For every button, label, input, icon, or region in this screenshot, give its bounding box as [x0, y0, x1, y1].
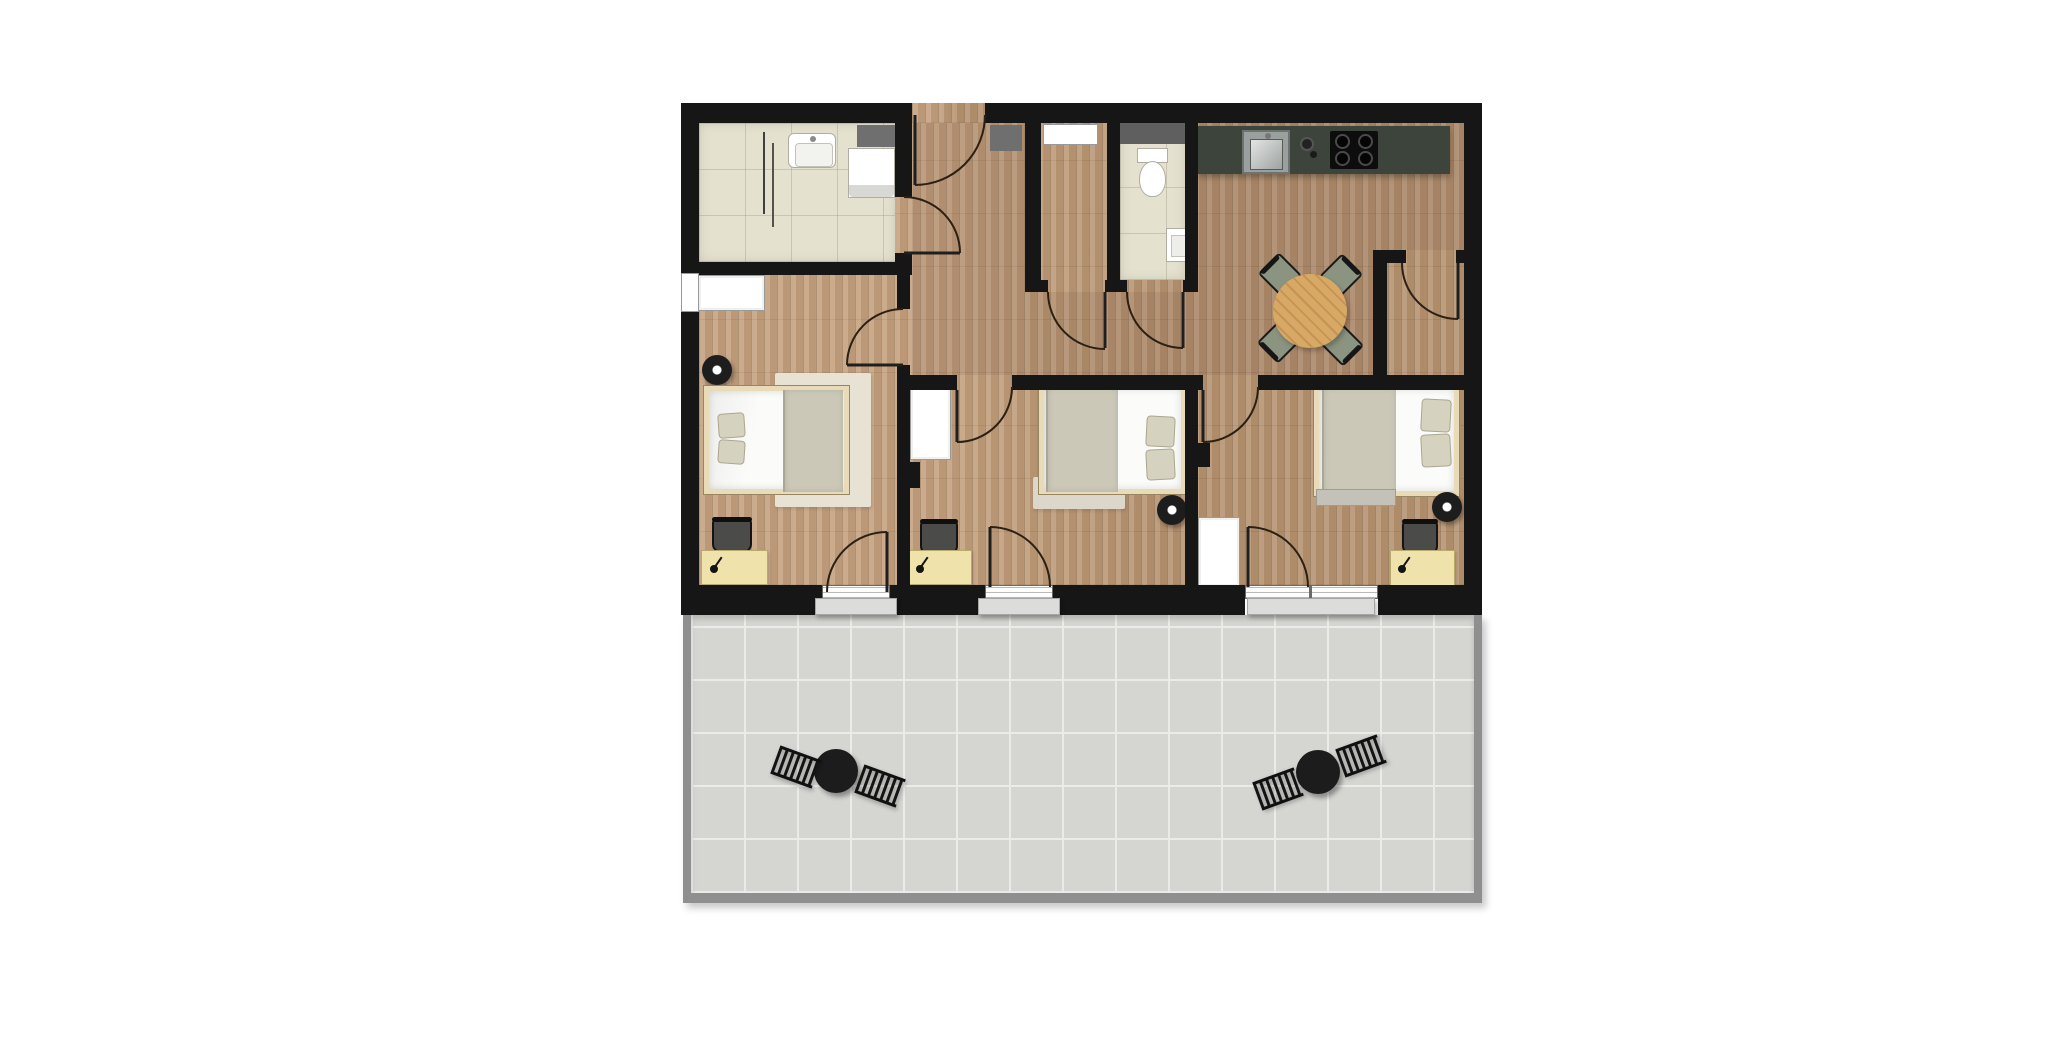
wall [1258, 375, 1464, 390]
bed-bench [1316, 489, 1396, 506]
bed-blanket [1322, 388, 1396, 494]
pillow [1145, 448, 1176, 480]
wall [897, 365, 910, 585]
wall [898, 375, 957, 390]
door-frame-divider [1309, 585, 1312, 599]
kitchen-sink-basin [1250, 139, 1283, 170]
floor-plan-canvas [0, 0, 2048, 1056]
wall [1025, 123, 1041, 280]
bed-blanket [783, 390, 843, 492]
wall [681, 103, 912, 123]
wall [681, 103, 699, 273]
washer-door-band [849, 185, 894, 197]
speaker-side-table [702, 355, 732, 385]
terrace-door-step [815, 598, 897, 615]
speaker-side-table [1157, 495, 1187, 525]
pillow [1420, 398, 1452, 433]
bed-blanket [1046, 388, 1118, 492]
apartment-floor-plan [681, 103, 1482, 903]
door-stop-stub [910, 462, 920, 488]
double-bed [1313, 383, 1460, 497]
pot-icon [1300, 137, 1314, 151]
wall [681, 585, 822, 615]
corridor-floor-tint [1025, 292, 1198, 375]
vent-window [990, 125, 1022, 151]
wall [681, 262, 912, 275]
kitchen-faucet-icon [1265, 133, 1271, 139]
wall [1120, 280, 1127, 292]
faucet-icon [810, 136, 816, 142]
shower-partition-line [763, 132, 765, 214]
bistro-chair [1252, 767, 1304, 810]
window [681, 273, 699, 312]
bistro-chair [1335, 734, 1387, 777]
wall [1185, 123, 1198, 292]
bistro-chair [770, 745, 822, 788]
wall [1107, 123, 1120, 280]
terrace-door-frame [985, 585, 1053, 599]
wall [681, 312, 699, 599]
pillow [717, 412, 746, 439]
desk [907, 550, 972, 585]
bathroom-sink [788, 133, 836, 168]
terrace-door-step [978, 598, 1060, 615]
burner-icon [1358, 151, 1373, 166]
wall [1456, 250, 1464, 263]
wall [1185, 375, 1198, 585]
desk-lamp-icon [916, 565, 924, 573]
wall [1183, 280, 1198, 292]
terrace [683, 615, 1482, 903]
kitchen-counter [1198, 126, 1450, 174]
vent-window [1120, 123, 1185, 144]
door-stop-stub [1198, 443, 1210, 467]
wall [895, 123, 912, 197]
window [1043, 124, 1098, 145]
wall [890, 585, 985, 615]
desk [1390, 550, 1455, 588]
wall [897, 275, 910, 309]
wall [1464, 103, 1482, 615]
terrace-door-step [1247, 598, 1375, 615]
bistro-chair [854, 764, 906, 807]
burner-icon [1358, 134, 1373, 149]
wall [1373, 252, 1387, 375]
sink-basin [795, 143, 833, 167]
vent-window [857, 125, 895, 147]
desk [701, 550, 768, 585]
burner-icon [1335, 134, 1350, 149]
wall [1025, 280, 1048, 292]
wall [1378, 585, 1482, 615]
washing-machine [848, 148, 895, 198]
terrace-door-frame [822, 585, 890, 599]
pillow [1145, 415, 1176, 447]
dining-table [1273, 274, 1347, 348]
kitchen-sink [1242, 130, 1290, 174]
wall [1012, 375, 1203, 390]
wardrobe [1198, 517, 1240, 587]
desk-lamp-icon [1398, 565, 1406, 573]
entrance-doorway-floor [912, 103, 985, 123]
shower-partition-line [772, 143, 774, 227]
double-bed [703, 385, 850, 495]
hallway-floor-tint [912, 123, 1025, 375]
pillow [1420, 433, 1452, 468]
bistro-table [1296, 750, 1340, 794]
speaker-side-table [1432, 492, 1462, 522]
pillow [717, 439, 746, 465]
burner-icon [1335, 151, 1350, 166]
cooktop [1330, 131, 1378, 169]
wardrobe [698, 275, 765, 311]
wall [985, 103, 1482, 123]
desk-chair [712, 518, 752, 553]
small-item-icon [1310, 151, 1317, 158]
wall [1053, 585, 1245, 615]
double-bed [1038, 383, 1187, 495]
wall [1105, 280, 1120, 292]
bistro-table [814, 749, 858, 793]
desk-lamp-icon [710, 565, 718, 573]
toilet-bowl [1139, 161, 1166, 197]
wardrobe [910, 387, 951, 460]
